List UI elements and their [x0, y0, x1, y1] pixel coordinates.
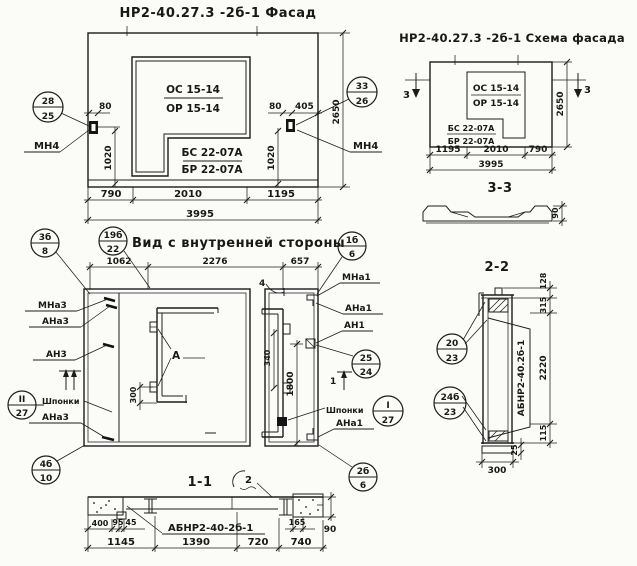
facade-panel-stamp: БС 22-07А БР 22-07А [181, 147, 243, 176]
svg-text:20: 20 [446, 339, 459, 349]
label-an3: АН3 [33, 345, 107, 360]
dim-115: 115 [539, 424, 548, 441]
svg-text:25: 25 [42, 112, 55, 122]
callout-3b-8: 3б 8 [31, 229, 90, 294]
dim-25: 25 [510, 444, 519, 456]
dim-740: 740 [291, 537, 312, 548]
top-anchor-hatch [489, 299, 508, 312]
facade-drawing: НР2-40.27.3 -2б-1 Фасад ОС 15-14 ОР 15-1… [24, 6, 382, 224]
schema-dim-790: 790 [529, 145, 548, 155]
svg-text:27: 27 [16, 409, 29, 419]
frame-profile-joint-left [144, 499, 157, 513]
svg-text:23: 23 [444, 408, 457, 418]
svg-text:МН4: МН4 [34, 141, 59, 152]
schema-window-stamp-top: ОС 15-14 [473, 84, 519, 94]
dim-657: 657 [291, 257, 310, 267]
label-an1: АН1 [316, 321, 373, 343]
cut-mark-1-right: 1 [330, 370, 352, 390]
svg-text:АН3: АН3 [46, 350, 67, 360]
dim-90: 90 [324, 525, 337, 535]
detail-a-label: А [158, 329, 205, 386]
section-3-3-profile: 90 [423, 201, 567, 226]
dim-2220: 2220 [539, 355, 549, 380]
dim-45: 45 [125, 518, 137, 527]
svg-text:АНа3: АНа3 [42, 413, 69, 423]
label-ana3-bottom: АНа3 [29, 413, 106, 438]
svg-text:19б: 19б [104, 230, 123, 241]
callout-28-25: 28 25 [33, 92, 89, 126]
dim-80-left: 80 [99, 102, 112, 112]
drawing-sheet: НР2-40.27.3 -2б-1 Фасад ОС 15-14 ОР 15-1… [0, 0, 637, 566]
callout-2b-6: 2б 6 [319, 445, 377, 491]
svg-text:25: 25 [360, 354, 373, 364]
svg-text:Шпонки: Шпонки [326, 406, 363, 415]
dim-2276: 2276 [202, 257, 227, 267]
anchor-label-right: МН4 [297, 130, 382, 152]
inner-view-drawing: 19б 22 Вид с внутренней стороны 3б 8 1б … [8, 227, 403, 491]
svg-text:I: I [386, 401, 389, 411]
bottom-anchor-hatch [489, 431, 508, 441]
callout-keys-left: II 27 [8, 391, 44, 419]
svg-text:4: 4 [259, 279, 265, 289]
svg-text:МНа3: МНа3 [38, 301, 67, 311]
svg-text:АН1: АН1 [344, 321, 365, 331]
dim-405: 405 [295, 102, 314, 112]
svg-text:АНа1: АНа1 [345, 304, 372, 314]
schema-panel-stamp-top: БС 22-07А [448, 124, 495, 133]
label-ana1-top: АНа1 [316, 303, 383, 314]
svg-text:Шпонки: Шпонки [42, 397, 79, 406]
callout-24b-23: 24б 23 [434, 387, 486, 441]
svg-text:3: 3 [584, 85, 591, 96]
schema-dim-1195: 1195 [435, 145, 460, 155]
label-shponki-left: Шпонки [42, 397, 112, 412]
dim-720: 720 [248, 537, 269, 548]
svg-text:2: 2 [245, 475, 252, 486]
section-2-2-item-label: АБНР2-40.2б-1 [516, 340, 527, 416]
section-2-2-label: 2-2 [485, 260, 510, 275]
dim-2010: 2010 [174, 189, 202, 200]
dim-1390: 1390 [182, 537, 210, 548]
detail-mark-2: 2 [233, 471, 272, 497]
svg-text:26: 26 [356, 97, 369, 107]
svg-text:1: 1 [330, 377, 336, 387]
panel-stamp-bottom: БР 22-07А [181, 164, 243, 176]
dim-1195: 1195 [267, 189, 295, 200]
svg-text:2б: 2б [357, 466, 370, 477]
callout-4b-10: 4б 10 [32, 445, 85, 484]
label-mna3: МНа3 [25, 299, 108, 311]
callout-25-24: 25 24 [316, 345, 380, 378]
dim-1800: 1800 [286, 371, 296, 396]
label-mna1: МНа1 [317, 273, 380, 296]
svg-text:10: 10 [40, 474, 53, 484]
section-2-2-drawing: 2-2 АБНР2-40.2б-1 20 23 [434, 260, 557, 476]
schema-drawing: НР2-40.27.3 -2б-1 Схема фасада ОС 15-14 … [399, 31, 625, 196]
cut-mark-1-left [59, 369, 81, 390]
left-support-block [88, 497, 126, 519]
dim-1020-right: 1020 [267, 145, 277, 170]
svg-text:28: 28 [42, 97, 55, 107]
dim-340: 340 [263, 349, 272, 366]
anchor-label-left: МН4 [24, 130, 89, 152]
frame-profile-joint-right [279, 499, 292, 515]
item-label-1-1: АБНР2-40-2б-1 [127, 506, 265, 534]
dim-790: 790 [101, 189, 122, 200]
dim-80-right: 80 [269, 102, 282, 112]
svg-text:АНа3: АНа3 [42, 317, 69, 327]
schema-dim-3995: 3995 [478, 160, 503, 170]
blueprint-svg: НР2-40.27.3 -2б-1 Фасад ОС 15-14 ОР 15-1… [0, 0, 637, 566]
panel-stamp-top: БС 22-07А [181, 147, 243, 159]
svg-text:А: А [172, 350, 181, 362]
svg-text:23: 23 [446, 354, 459, 364]
schema-dim-2010: 2010 [483, 145, 508, 155]
section-3-3-label: 3-3 [488, 181, 513, 196]
window-stamp-top: ОС 15-14 [166, 84, 220, 96]
svg-text:1б: 1б [346, 235, 359, 246]
dim-315: 315 [539, 296, 548, 313]
window-stamp-bottom: ОР 15-14 [166, 103, 220, 115]
section-1-1-drawing: 1-1 2 [84, 471, 336, 552]
callout-20-23: 20 23 [437, 302, 487, 364]
schema-title: НР2-40.27.3 -2б-1 Схема фасада [399, 31, 625, 45]
label-shponki-right: Шпонки [288, 406, 363, 420]
dim-128: 128 [539, 272, 548, 289]
schema-dim-2650: 2650 [556, 91, 566, 116]
dim-300-foot: 300 [488, 466, 507, 476]
profile-dim-90: 90 [551, 207, 560, 219]
svg-text:II: II [19, 395, 26, 405]
callout-keys-right: I 27 [373, 396, 403, 426]
svg-text:3: 3 [403, 90, 410, 101]
svg-text:6: 6 [360, 481, 366, 491]
facade-title: НР2-40.27.3 -2б-1 Фасад [119, 6, 316, 21]
svg-text:АНа1: АНа1 [336, 419, 363, 429]
svg-text:8: 8 [42, 247, 48, 257]
svg-text:24: 24 [360, 368, 373, 378]
dim-3995: 3995 [186, 209, 214, 220]
svg-text:3б: 3б [39, 232, 52, 243]
inner-view-title: Вид с внутренней стороны [132, 236, 345, 251]
svg-text:МНа1: МНа1 [342, 273, 371, 283]
svg-text:27: 27 [382, 416, 395, 426]
dim-1145: 1145 [107, 537, 135, 548]
svg-text:22: 22 [107, 245, 120, 255]
dim-95: 95 [112, 518, 124, 527]
svg-text:33: 33 [356, 82, 369, 92]
svg-text:МН4: МН4 [353, 141, 378, 152]
section-mark-3-left: 3 [403, 73, 430, 101]
facade-window-stamp: ОС 15-14 ОР 15-14 [164, 84, 223, 115]
dim-165: 165 [289, 518, 306, 527]
svg-text:4б: 4б [40, 459, 53, 470]
label-ana1-bottom: АНа1 [318, 419, 374, 437]
window-frame-profile-left [150, 308, 218, 403]
svg-text:6: 6 [349, 250, 355, 260]
dim-1062: 1062 [106, 257, 131, 267]
mark-4: 4 [259, 279, 284, 296]
dim-400: 400 [92, 519, 109, 528]
dim-1020-left: 1020 [104, 145, 114, 170]
section-1-1-label: 1-1 [188, 475, 213, 490]
dim-300: 300 [129, 386, 138, 403]
svg-text:АБНР2-40-2б-1: АБНР2-40-2б-1 [168, 522, 253, 534]
svg-text:24б: 24б [441, 392, 460, 403]
schema-window-stamp-bottom: ОР 15-14 [473, 99, 519, 109]
inner-right-panel [265, 289, 318, 446]
